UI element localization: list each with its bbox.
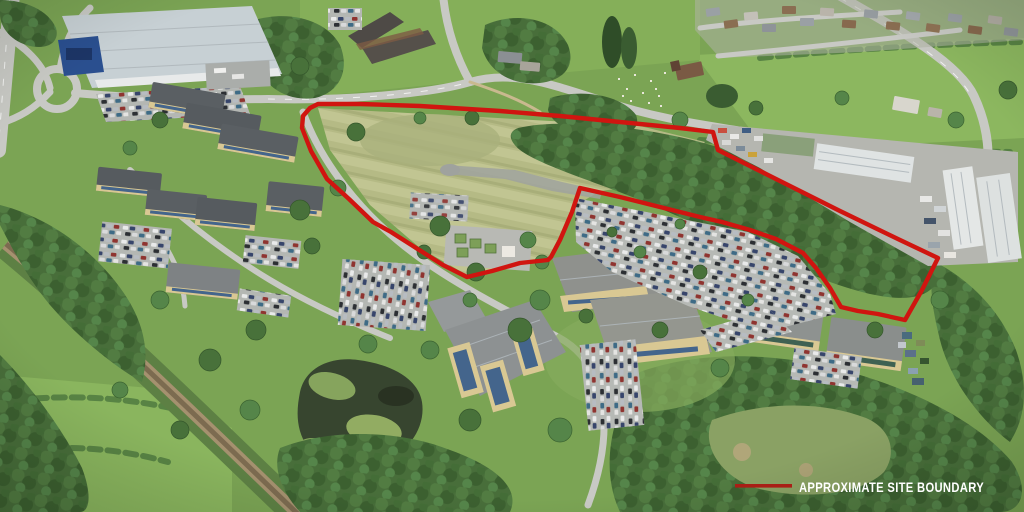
photo-vignette bbox=[0, 0, 1024, 512]
aerial-photo: APPROXIMATE SITE BOUNDARY bbox=[0, 0, 1024, 512]
legend-boundary-swatch bbox=[735, 484, 792, 488]
aerial-photo-canvas: APPROXIMATE SITE BOUNDARY bbox=[0, 0, 1024, 512]
legend-label: APPROXIMATE SITE BOUNDARY bbox=[799, 479, 984, 495]
